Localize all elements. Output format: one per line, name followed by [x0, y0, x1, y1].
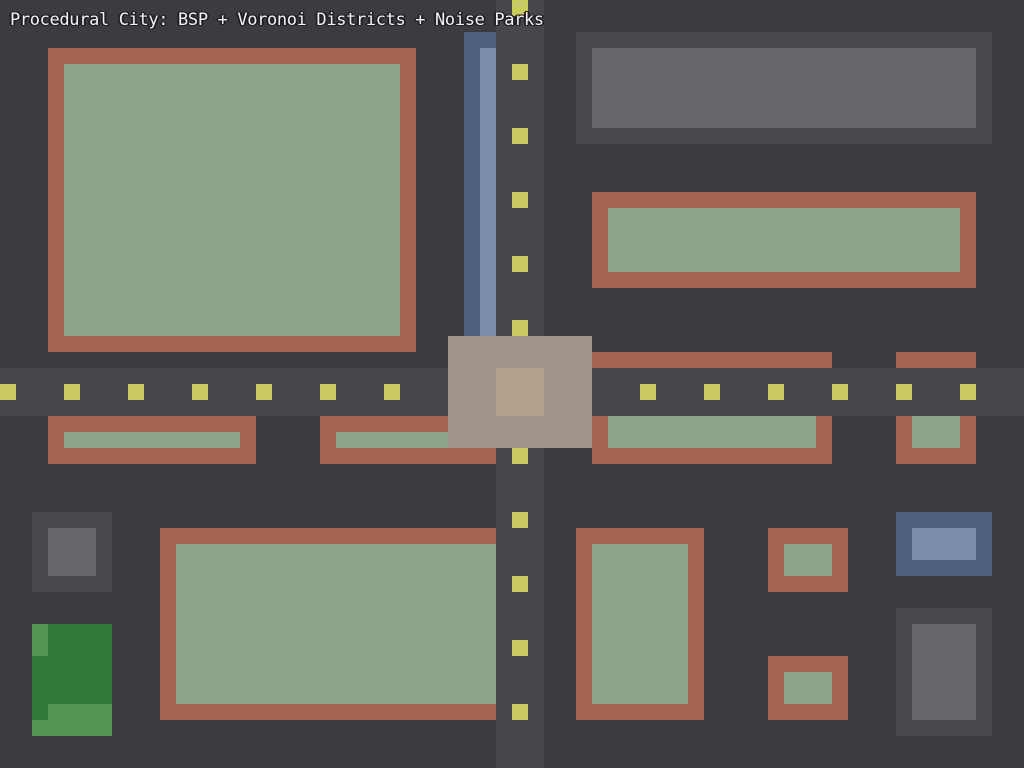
lane-dash-vertical-2 [512, 128, 528, 144]
city-canvas: Procedural City: BSP + Voronoi Districts… [0, 0, 1024, 768]
lane-dash-horizontal-0 [0, 384, 16, 400]
lane-dash-horizontal-13 [832, 384, 848, 400]
river-water [480, 48, 496, 336]
window-title: Procedural City: BSP + Voronoi Districts… [10, 10, 544, 30]
park-patch-s2 [32, 720, 112, 736]
lane-dash-vertical-5 [512, 320, 528, 336]
lane-dash-horizontal-2 [128, 384, 144, 400]
lane-dash-vertical-4 [512, 256, 528, 272]
building-sliver-center [592, 352, 832, 368]
lane-dash-vertical-10 [512, 640, 528, 656]
building-e-roof [608, 208, 960, 272]
building-sliver-east [896, 352, 976, 368]
plaza-inner [496, 368, 544, 416]
lane-dash-horizontal-14 [896, 384, 912, 400]
building-s4-roof [912, 416, 960, 448]
building-sbig-roof [176, 544, 496, 704]
lane-dash-vertical-3 [512, 192, 528, 208]
lane-dash-vertical-1 [512, 64, 528, 80]
building-nw-roof [64, 64, 400, 336]
lane-dash-horizontal-3 [192, 384, 208, 400]
lane-dash-horizontal-5 [320, 384, 336, 400]
lane-dash-horizontal-12 [768, 384, 784, 400]
lane-dash-vertical-11 [512, 704, 528, 720]
lane-dash-horizontal-11 [704, 384, 720, 400]
building-s3-roof [608, 416, 816, 448]
lane-dash-horizontal-6 [384, 384, 400, 400]
building-s1-roof [64, 432, 240, 448]
building-se2-roof [784, 672, 832, 704]
lane-dash-vertical-8 [512, 512, 528, 528]
lane-dash-horizontal-4 [256, 384, 272, 400]
block-ne-inner [592, 48, 976, 128]
lane-dash-horizontal-1 [64, 384, 80, 400]
building-smid-roof [592, 544, 688, 704]
lane-dash-vertical-7 [512, 448, 528, 464]
lane-dash-vertical-9 [512, 576, 528, 592]
block-sw-inner [48, 528, 96, 576]
lane-dash-horizontal-15 [960, 384, 976, 400]
block-se-inner [912, 624, 976, 720]
lane-dash-horizontal-10 [640, 384, 656, 400]
pond-water [912, 528, 976, 560]
park-patch-s1 [48, 704, 112, 720]
park-patch-nw [32, 624, 48, 656]
building-se1-roof [784, 544, 832, 576]
